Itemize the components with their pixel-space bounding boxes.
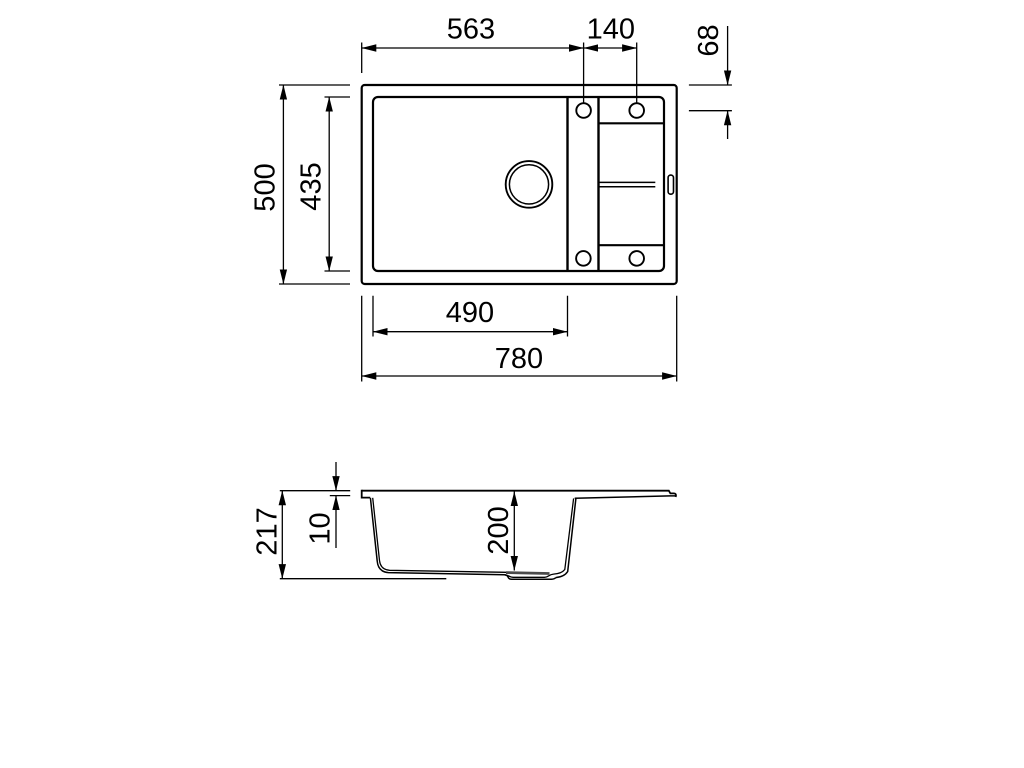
svg-text:500: 500: [250, 163, 282, 211]
svg-text:217: 217: [252, 507, 284, 555]
svg-text:68: 68: [693, 24, 725, 56]
svg-text:780: 780: [495, 343, 543, 375]
svg-text:563: 563: [447, 14, 495, 46]
svg-text:140: 140: [587, 14, 635, 46]
svg-text:435: 435: [296, 162, 328, 210]
svg-text:10: 10: [305, 512, 337, 544]
svg-text:490: 490: [446, 297, 494, 329]
svg-text:200: 200: [483, 506, 515, 554]
